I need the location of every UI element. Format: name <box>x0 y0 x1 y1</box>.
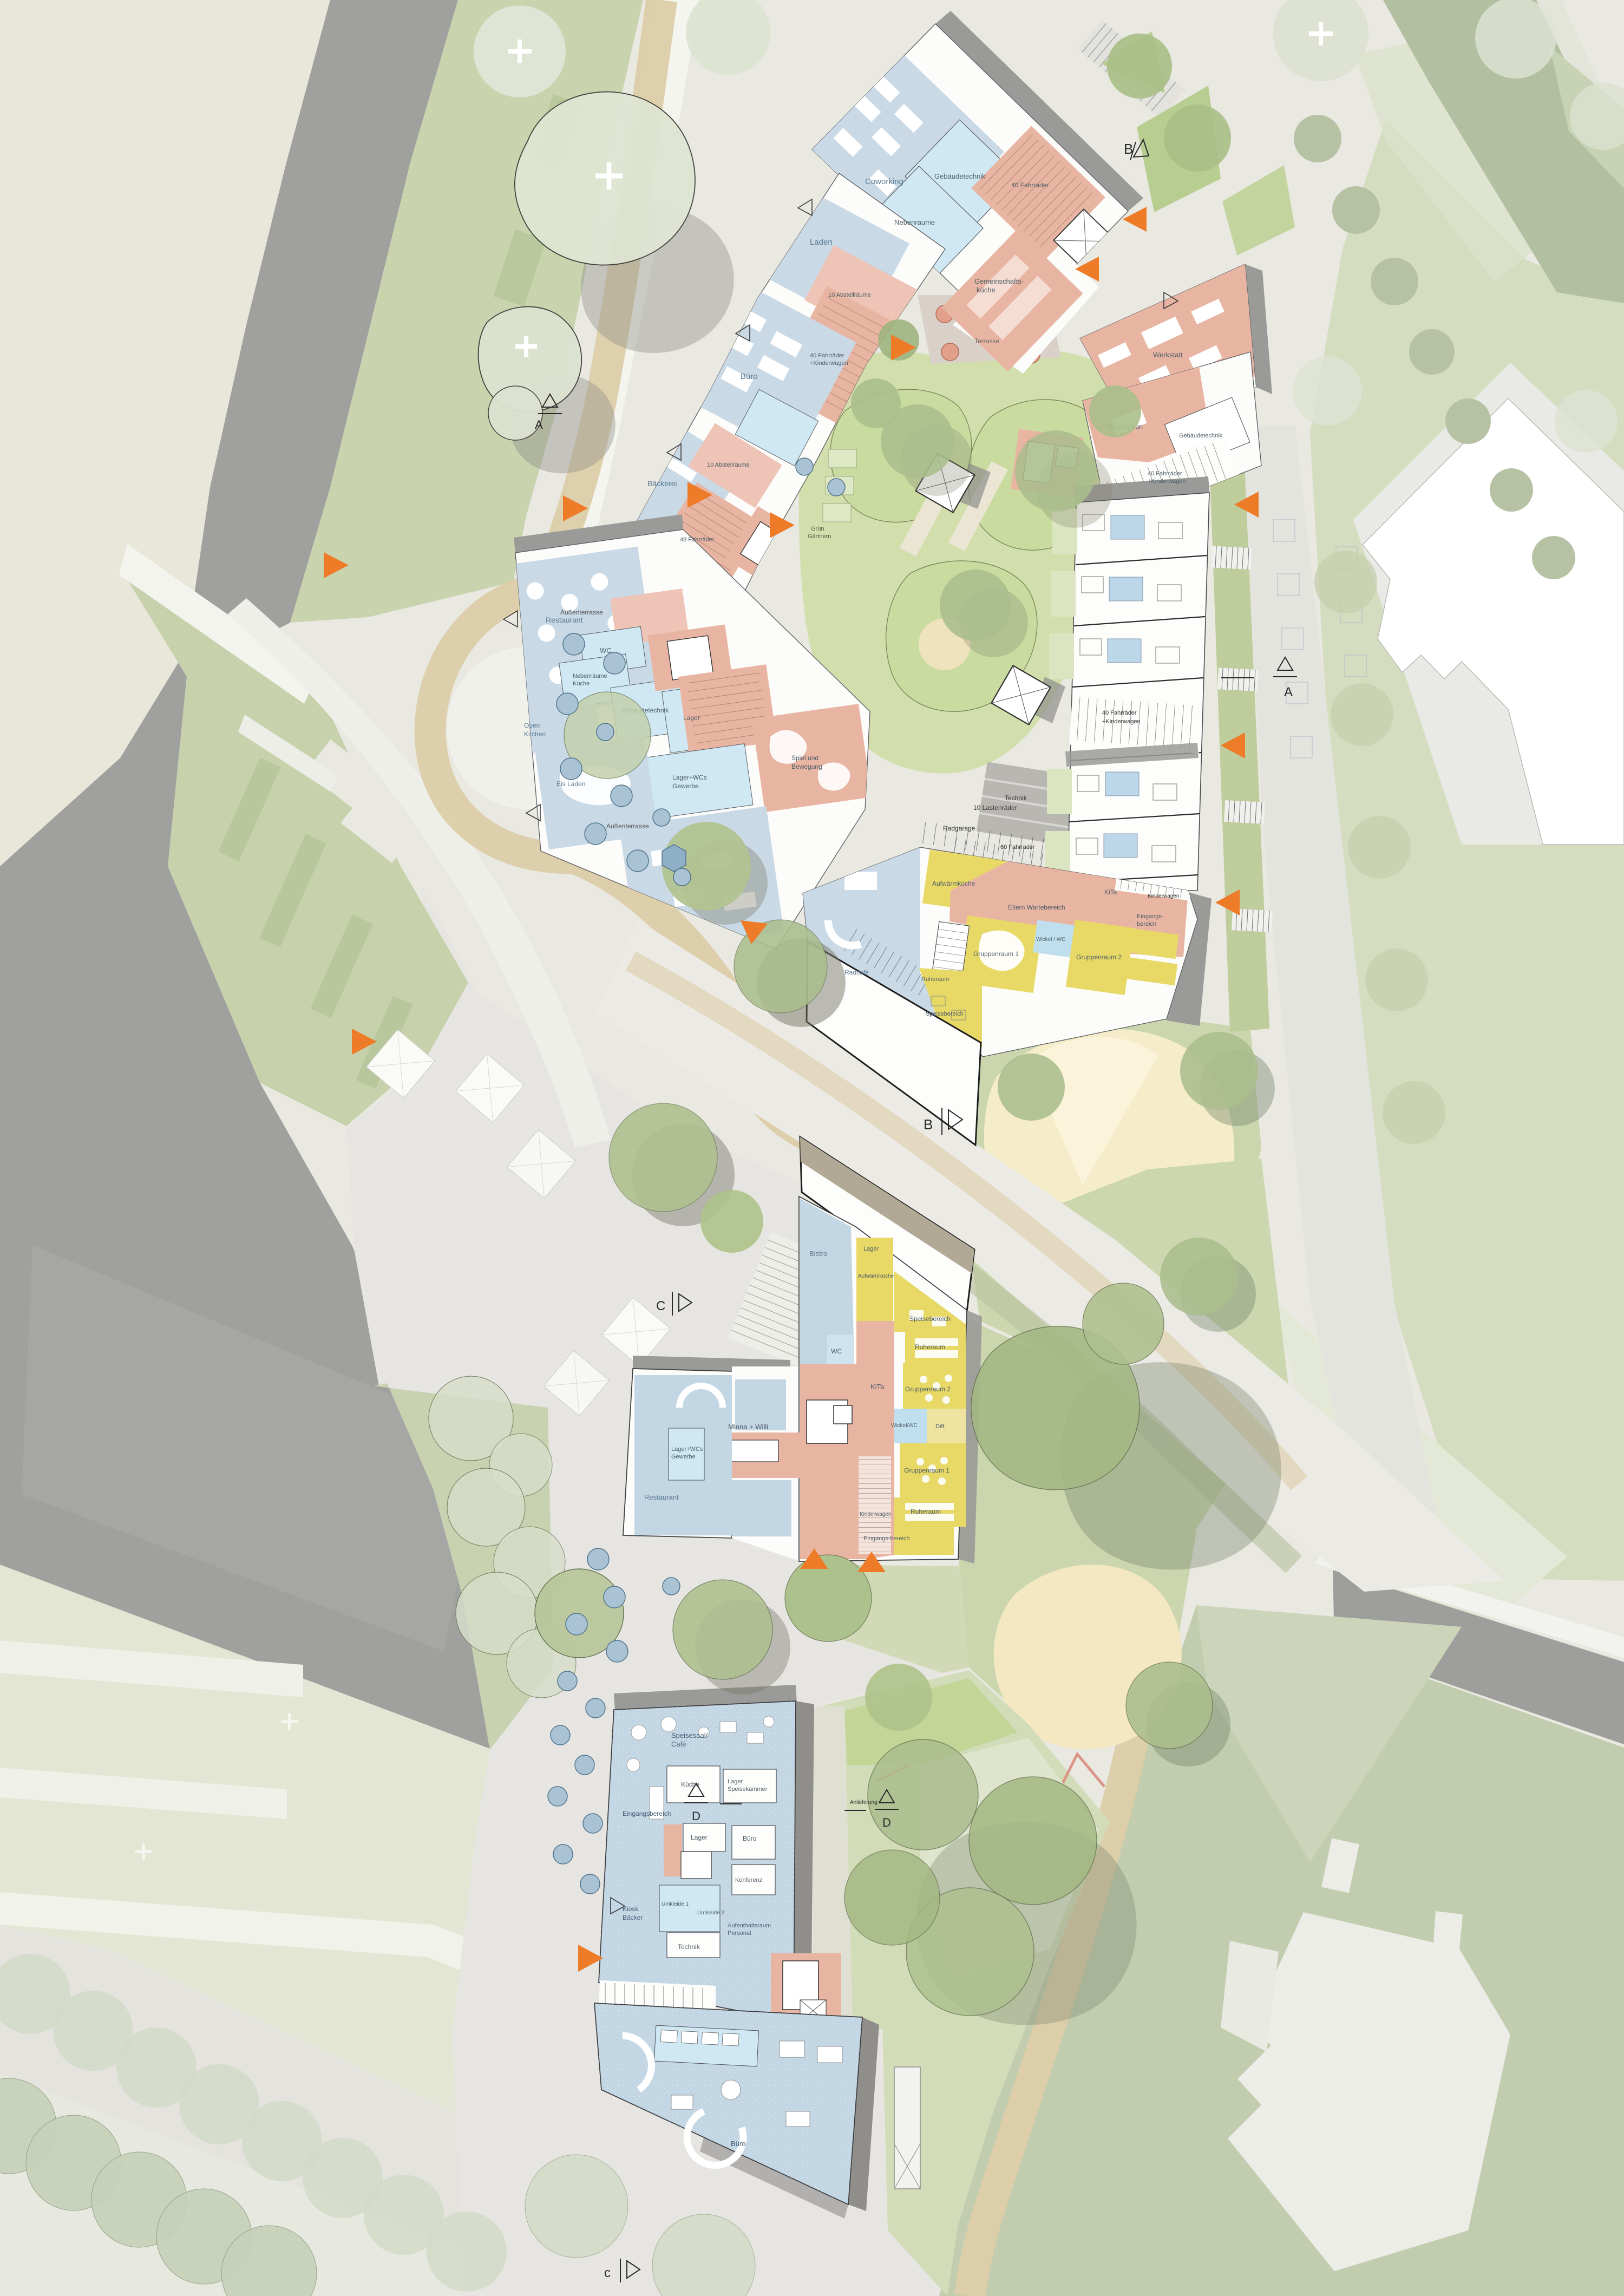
svg-text:Aufwärmküche: Aufwärmküche <box>858 1273 894 1279</box>
svg-text:Bistro: Bistro <box>809 1250 827 1258</box>
svg-text:Radgarage: Radgarage <box>943 825 975 832</box>
svg-text:Eingangsbereich: Eingangsbereich <box>623 1810 671 1817</box>
svg-text:Bewegung: Bewegung <box>791 763 822 770</box>
svg-text:KiTa: KiTa <box>1104 888 1117 896</box>
svg-text:Wickel / WC: Wickel / WC <box>1036 937 1065 943</box>
svg-text:Anlieferung: Anlieferung <box>850 1800 878 1806</box>
svg-text:Büro: Büro <box>743 1835 757 1842</box>
svg-text:Technik: Technik <box>1005 794 1027 802</box>
svg-text:Ruheraum: Ruheraum <box>915 1343 945 1351</box>
svg-text:Gebäudetechnik: Gebäudetechnik <box>934 172 986 180</box>
svg-text:Gruppenraum 2: Gruppenraum 2 <box>1076 953 1122 961</box>
svg-text:Lager: Lager <box>728 1778 743 1785</box>
svg-text:Radcafé: Radcafé <box>844 969 869 976</box>
svg-text:40 Fahrräder: 40 Fahrräder <box>1102 710 1137 716</box>
svg-text:Gewerbe: Gewerbe <box>672 782 699 790</box>
svg-text:Lager+WCs: Lager+WCs <box>672 774 707 781</box>
svg-text:Ruheraum: Ruheraum <box>911 1508 941 1515</box>
svg-text:C: C <box>656 1299 665 1313</box>
svg-text:Restaurant: Restaurant <box>546 616 583 624</box>
svg-text:A: A <box>535 418 543 431</box>
svg-text:Lager: Lager <box>863 1246 879 1252</box>
svg-text:D: D <box>882 1816 891 1829</box>
svg-text:Konferenz: Konferenz <box>735 1877 762 1883</box>
svg-text:Kitchen: Kitchen <box>524 730 546 738</box>
svg-text:Restaurant: Restaurant <box>644 1493 679 1501</box>
svg-text:Bäckerei: Bäckerei <box>647 479 677 488</box>
svg-text:10 Abstellräume: 10 Abstellräume <box>828 292 871 298</box>
svg-text:Coworking: Coworking <box>865 177 903 186</box>
svg-text:Diff.: Diff. <box>935 1423 946 1430</box>
svg-text:40 Fahrräder: 40 Fahrräder <box>1148 470 1182 477</box>
svg-text:Speisebereich: Speisebereich <box>909 1315 951 1323</box>
svg-text:Küche: Küche <box>573 681 590 687</box>
svg-text:Technik: Technik <box>678 1943 700 1951</box>
svg-text:Speisebereich: Speisebereich <box>926 1011 964 1017</box>
svg-text:Open: Open <box>524 722 540 729</box>
svg-text:Umkleide 1: Umkleide 1 <box>662 1901 689 1907</box>
svg-text:Grün: Grün <box>811 526 824 532</box>
svg-text:Speisesaal/: Speisesaal/ <box>671 1731 708 1739</box>
svg-text:KiTa: KiTa <box>870 1383 885 1391</box>
svg-text:Büro: Büro <box>731 2140 745 2148</box>
svg-text:Personal: Personal <box>728 1930 751 1937</box>
svg-text:+Kinderwagen: +Kinderwagen <box>1102 718 1141 725</box>
svg-text:+Kinderwagen: +Kinderwagen <box>1148 478 1186 485</box>
svg-text:Lager: Lager <box>683 714 700 722</box>
svg-text:Gebäudetechnik: Gebäudetechnik <box>1179 433 1223 439</box>
svg-text:A: A <box>1284 685 1293 699</box>
svg-text:Eltern Wartebereich: Eltern Wartebereich <box>1008 904 1065 911</box>
svg-text:D: D <box>692 1809 700 1823</box>
svg-text:Wickel/WC: Wickel/WC <box>891 1423 918 1429</box>
svg-text:10 Abstellräume: 10 Abstellräume <box>707 462 750 468</box>
svg-text:Umkleide 2: Umkleide 2 <box>697 1910 724 1916</box>
svg-text:Speisekammer: Speisekammer <box>728 1786 768 1793</box>
svg-text:Werkstatt: Werkstatt <box>1153 351 1183 359</box>
svg-text:Aufwärmküche: Aufwärmküche <box>932 880 975 887</box>
svg-text:+Kinderwagen: +Kinderwagen <box>810 360 848 367</box>
svg-text:c: c <box>604 2266 611 2280</box>
svg-text:Lager+WCs: Lager+WCs <box>671 1446 703 1453</box>
svg-text:Nebenräume: Nebenräume <box>894 218 935 226</box>
svg-text:B: B <box>1124 141 1133 157</box>
svg-text:40 Fahrräder: 40 Fahrräder <box>1011 181 1049 189</box>
svg-text:Ruheraum: Ruheraum <box>921 976 949 983</box>
svg-text:Kinderwagen: Kinderwagen <box>1148 893 1179 899</box>
svg-text:Café: Café <box>671 1740 686 1748</box>
svg-text:Gemeinschafts-: Gemeinschafts- <box>974 277 1024 285</box>
svg-text:bereich: bereich <box>1137 921 1156 927</box>
svg-text:Außenterrasse: Außenterrasse <box>606 822 649 830</box>
svg-text:Nebenräume: Nebenräume <box>573 673 607 679</box>
svg-text:10 Lastenräder: 10 Lastenräder <box>973 804 1017 812</box>
svg-text:Lager: Lager <box>691 1834 708 1841</box>
svg-text:Büro: Büro <box>741 372 758 381</box>
svg-text:Eingangs-: Eingangs- <box>1137 913 1164 920</box>
svg-text:Spiel und: Spiel und <box>791 754 818 762</box>
svg-text:Gewerbe: Gewerbe <box>671 1454 696 1460</box>
svg-text:Aufenthaltsraum: Aufenthaltsraum <box>728 1922 771 1929</box>
svg-text:B: B <box>924 1116 933 1133</box>
svg-text:48 Fahrräder: 48 Fahrräder <box>680 537 715 543</box>
svg-text:Eingangs-bereich: Eingangs-bereich <box>863 1535 910 1542</box>
svg-text:Terrasse: Terrasse <box>974 337 999 345</box>
svg-text:Außenterrasse: Außenterrasse <box>560 609 603 616</box>
svg-text:60 Fahrräder: 60 Fahrräder <box>1000 844 1035 851</box>
svg-text:Gruppenraum 2: Gruppenraum 2 <box>905 1385 951 1393</box>
svg-text:Laden: Laden <box>810 238 833 247</box>
svg-text:küche: küche <box>977 286 996 294</box>
svg-text:Minna + Willi: Minna + Willi <box>728 1423 768 1431</box>
svg-text:Kinderwagen: Kinderwagen <box>860 1512 891 1517</box>
svg-text:Gruppenraum 1: Gruppenraum 1 <box>904 1467 949 1474</box>
svg-text:Eis Laden: Eis Laden <box>556 780 585 788</box>
svg-text:40 Fahrräder: 40 Fahrräder <box>810 352 844 359</box>
svg-text:Gärtnern: Gärtnern <box>808 533 831 540</box>
svg-text:Gruppenraum 1: Gruppenraum 1 <box>973 950 1019 958</box>
svg-text:WC: WC <box>831 1347 842 1355</box>
svg-text:Bäcker: Bäcker <box>623 1914 643 1921</box>
